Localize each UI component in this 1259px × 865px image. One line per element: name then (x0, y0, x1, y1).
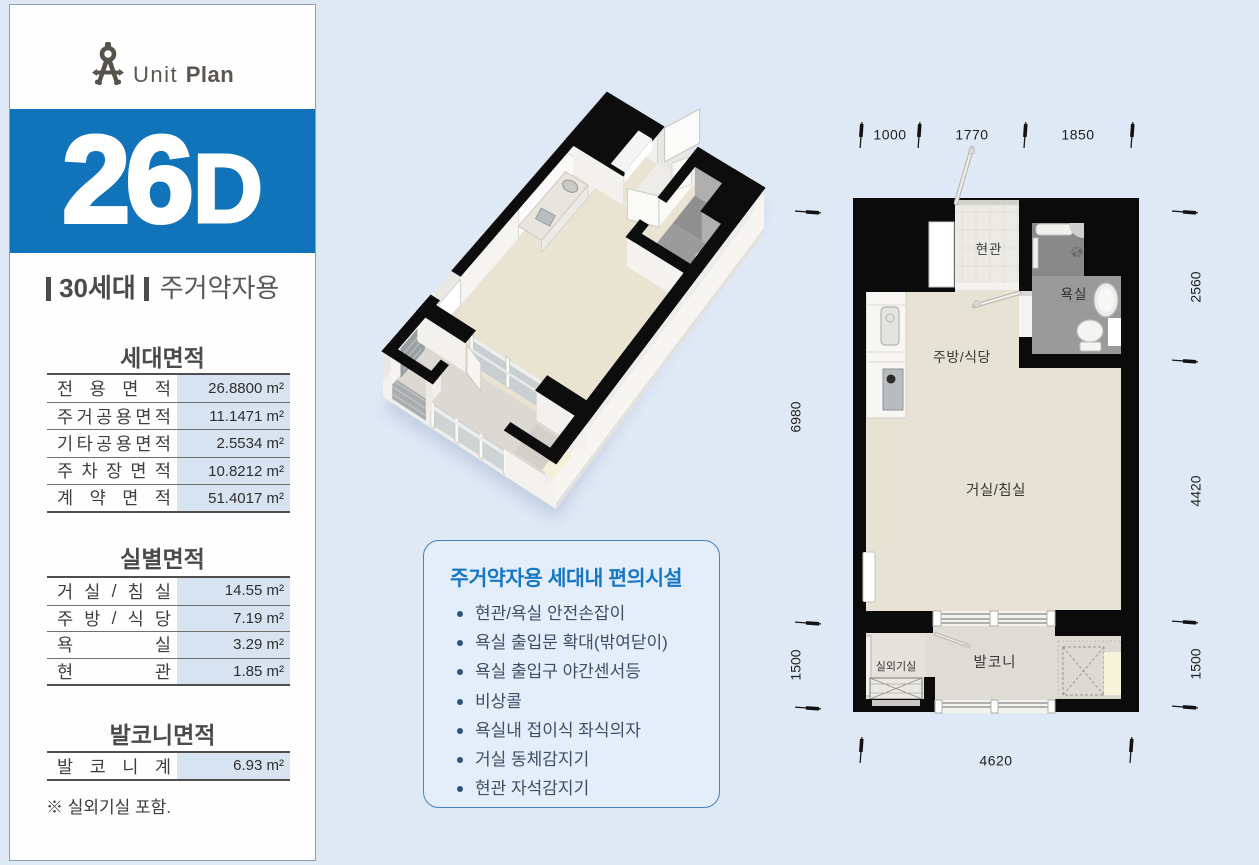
svg-text:현관: 현관 (976, 242, 1003, 257)
svg-text:4620: 4620 (979, 753, 1012, 769)
svg-text:1500: 1500 (788, 649, 804, 680)
svg-text:6980: 6980 (788, 401, 804, 432)
svg-text:거실/침실: 거실/침실 (966, 482, 1026, 499)
svg-text:2560: 2560 (1188, 271, 1204, 302)
svg-text:주방/식당: 주방/식당 (933, 349, 991, 365)
svg-text:실외기실: 실외기실 (876, 660, 916, 673)
svg-text:1500: 1500 (1188, 648, 1204, 679)
svg-text:1000: 1000 (873, 127, 906, 143)
svg-text:1850: 1850 (1061, 127, 1094, 143)
svg-text:4420: 4420 (1188, 475, 1204, 506)
svg-text:발코니: 발코니 (973, 654, 1016, 671)
svg-text:1770: 1770 (955, 127, 988, 143)
svg-text:욕실: 욕실 (1061, 287, 1088, 302)
